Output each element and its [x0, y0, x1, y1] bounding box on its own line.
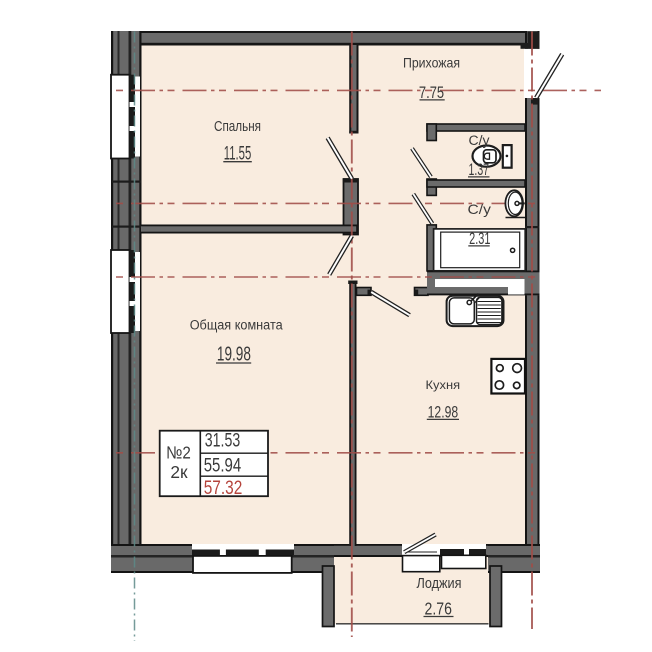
svg-text:7.75: 7.75: [419, 83, 444, 102]
svg-text:55.94: 55.94: [204, 455, 242, 476]
svg-text:Прихожая: Прихожая: [403, 55, 460, 70]
svg-text:Спальня: Спальня: [214, 118, 261, 135]
svg-text:№2: №2: [166, 442, 191, 462]
svg-text:С/у: С/у: [469, 133, 490, 148]
svg-text:Лоджия: Лоджия: [417, 576, 462, 592]
svg-text:С/у: С/у: [468, 202, 491, 217]
svg-text:57.32: 57.32: [204, 478, 243, 499]
svg-text:2.76: 2.76: [425, 598, 453, 618]
svg-text:31.53: 31.53: [205, 431, 240, 452]
svg-text:Общая комната: Общая комната: [190, 318, 283, 334]
svg-text:2к: 2к: [170, 462, 187, 482]
svg-text:Кухня: Кухня: [426, 378, 461, 392]
